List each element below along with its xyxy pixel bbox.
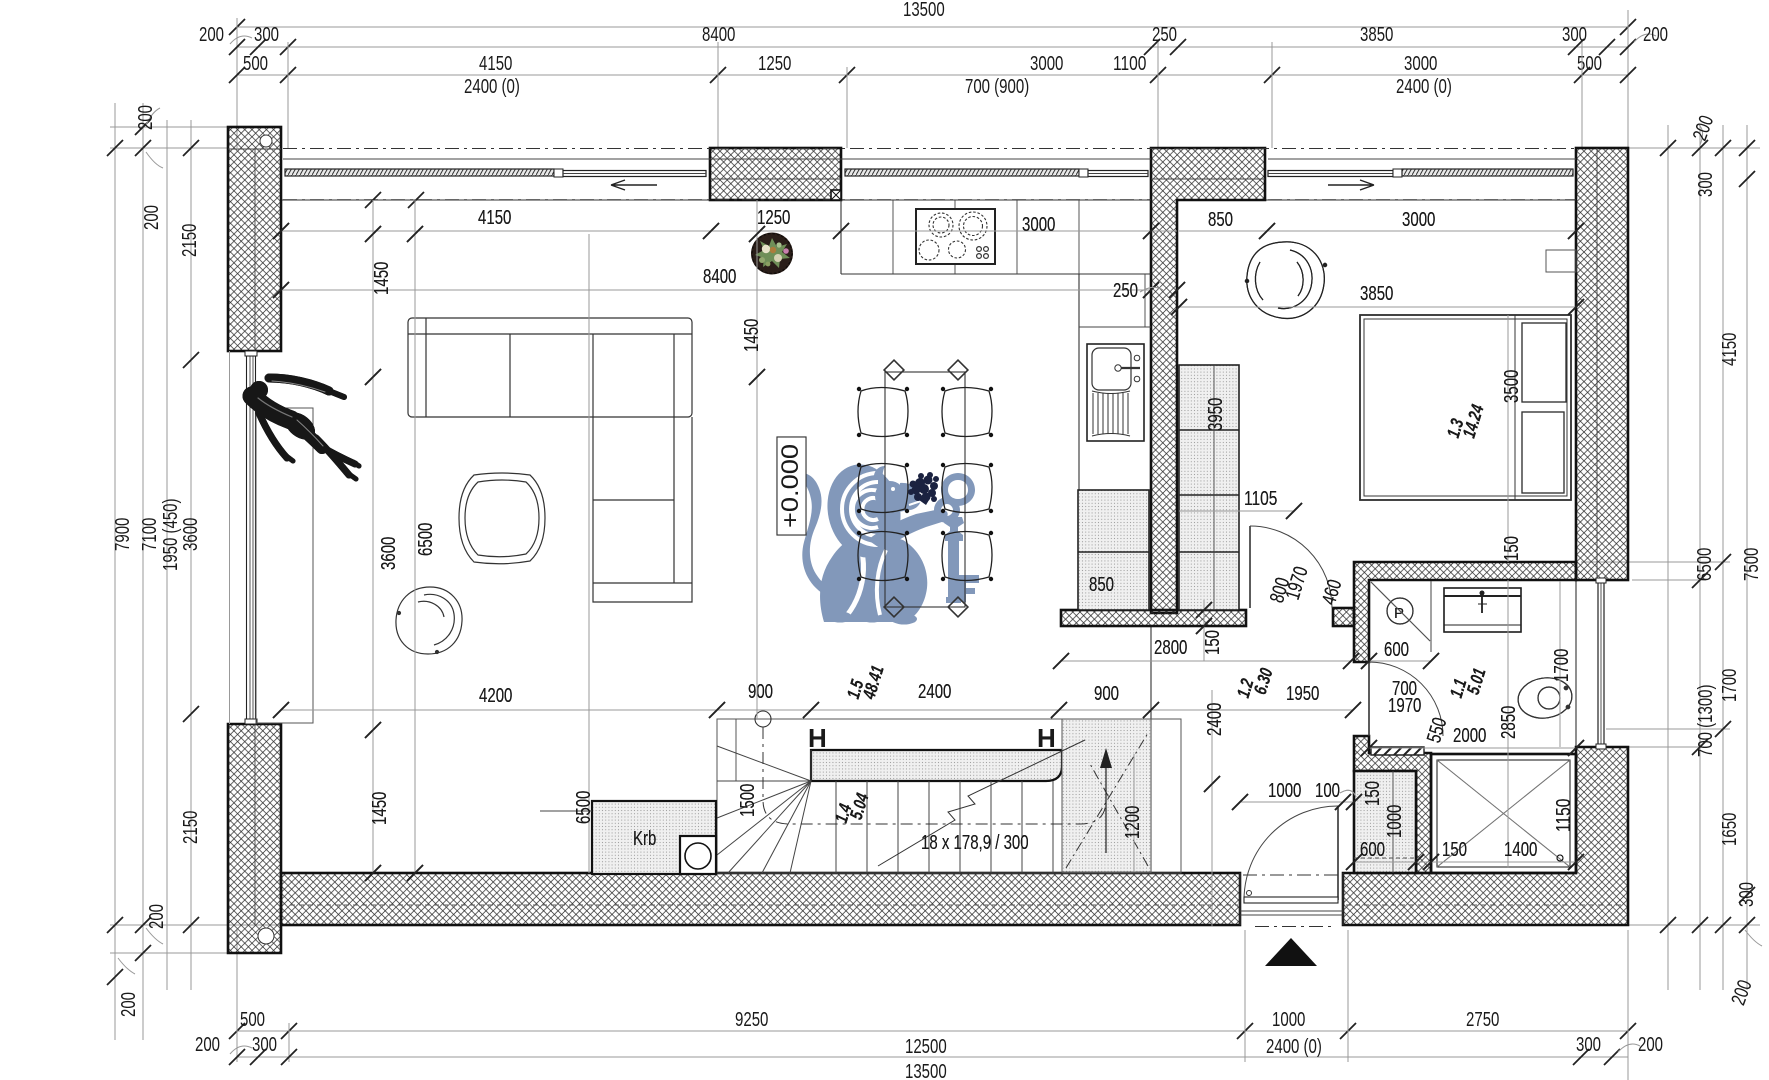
svg-text:1700: 1700 xyxy=(1551,649,1573,682)
svg-text:1000: 1000 xyxy=(1272,1009,1305,1031)
svg-text:1100: 1100 xyxy=(1113,53,1146,75)
svg-text:3850: 3850 xyxy=(1360,283,1393,305)
svg-text:H: H xyxy=(808,723,827,753)
svg-text:1250: 1250 xyxy=(757,207,790,229)
svg-text:200: 200 xyxy=(141,205,163,230)
svg-text:200: 200 xyxy=(135,105,157,130)
svg-text:4150: 4150 xyxy=(479,53,512,75)
svg-text:6500: 6500 xyxy=(573,791,595,824)
svg-text:300: 300 xyxy=(252,1034,277,1056)
svg-text:2000: 2000 xyxy=(1453,725,1486,747)
svg-text:250: 250 xyxy=(1152,24,1177,46)
svg-text:8400: 8400 xyxy=(702,24,735,46)
svg-text:300: 300 xyxy=(254,24,279,46)
svg-text:8400: 8400 xyxy=(703,266,736,288)
svg-text:7500: 7500 xyxy=(1741,548,1763,581)
svg-text:900: 900 xyxy=(1094,683,1119,705)
svg-text:500: 500 xyxy=(243,53,268,75)
svg-text:13500: 13500 xyxy=(905,1061,947,1080)
svg-text:200: 200 xyxy=(118,992,140,1017)
svg-text:1450: 1450 xyxy=(741,319,763,352)
svg-text:7900: 7900 xyxy=(112,518,134,551)
svg-text:1950 (450): 1950 (450) xyxy=(160,499,182,572)
svg-text:2400 (0): 2400 (0) xyxy=(464,76,520,98)
svg-text:600: 600 xyxy=(1360,839,1385,861)
svg-text:3600: 3600 xyxy=(378,537,400,570)
svg-text:850: 850 xyxy=(1208,209,1233,231)
svg-text:1000: 1000 xyxy=(1268,780,1301,802)
svg-text:300: 300 xyxy=(1562,24,1587,46)
svg-text:3000: 3000 xyxy=(1030,53,1063,75)
svg-text:300: 300 xyxy=(1736,882,1758,907)
svg-text:4200: 4200 xyxy=(479,685,512,707)
svg-text:2400 (0): 2400 (0) xyxy=(1396,76,1452,98)
svg-text:4150: 4150 xyxy=(478,207,511,229)
svg-text:1450: 1450 xyxy=(371,262,393,295)
svg-text:250: 250 xyxy=(1113,280,1138,302)
svg-text:200: 200 xyxy=(195,1034,220,1056)
svg-text:2850: 2850 xyxy=(1498,706,1520,739)
svg-text:1150: 1150 xyxy=(1553,799,1575,832)
svg-text:300: 300 xyxy=(1576,1034,1601,1056)
svg-text:2400: 2400 xyxy=(918,681,951,703)
svg-text:6500: 6500 xyxy=(415,523,437,556)
svg-text:200: 200 xyxy=(1643,24,1668,46)
svg-text:100: 100 xyxy=(1315,780,1340,802)
svg-text:200: 200 xyxy=(146,904,168,929)
svg-text:3950: 3950 xyxy=(1205,398,1227,431)
svg-text:700 (1300): 700 (1300) xyxy=(1695,685,1717,758)
svg-text:150: 150 xyxy=(1202,630,1224,655)
svg-text:7100: 7100 xyxy=(139,518,161,551)
svg-text:+0.000: +0.000 xyxy=(777,444,804,528)
svg-text:2150: 2150 xyxy=(179,224,201,257)
svg-text:2150: 2150 xyxy=(180,811,202,844)
svg-text:1200: 1200 xyxy=(1122,806,1144,839)
svg-text:12500: 12500 xyxy=(905,1036,947,1058)
svg-text:9250: 9250 xyxy=(735,1009,768,1031)
svg-text:1500: 1500 xyxy=(737,784,759,817)
svg-text:1250: 1250 xyxy=(758,53,791,75)
svg-text:18 x 178,9 / 300: 18 x 178,9 / 300 xyxy=(921,832,1029,854)
svg-text:700 (900): 700 (900) xyxy=(965,76,1029,98)
svg-text:150: 150 xyxy=(1501,536,1523,561)
svg-text:2800: 2800 xyxy=(1154,637,1187,659)
svg-text:1450: 1450 xyxy=(369,792,391,825)
svg-text:6500: 6500 xyxy=(1694,548,1716,581)
svg-text:500: 500 xyxy=(1577,53,1602,75)
svg-text:150: 150 xyxy=(1362,781,1384,806)
svg-text:200: 200 xyxy=(199,24,224,46)
svg-text:2400 (0): 2400 (0) xyxy=(1266,1036,1322,1058)
svg-text:2750: 2750 xyxy=(1466,1009,1499,1031)
svg-text:1700: 1700 xyxy=(1719,669,1741,702)
svg-text:1400: 1400 xyxy=(1504,839,1537,861)
svg-text:1970: 1970 xyxy=(1388,695,1421,717)
svg-text:2400: 2400 xyxy=(1204,703,1226,736)
svg-text:3000: 3000 xyxy=(1404,53,1437,75)
svg-text:13500: 13500 xyxy=(903,0,945,21)
svg-text:1950: 1950 xyxy=(1286,683,1319,705)
svg-text:1650: 1650 xyxy=(1719,813,1741,846)
svg-text:300: 300 xyxy=(1695,172,1717,197)
svg-text:1105: 1105 xyxy=(1244,488,1277,510)
svg-text:3600: 3600 xyxy=(180,518,202,551)
svg-text:3500: 3500 xyxy=(1501,370,1523,403)
svg-text:H: H xyxy=(1037,723,1056,753)
svg-text:600: 600 xyxy=(1384,639,1409,661)
svg-text:Krb: Krb xyxy=(633,828,656,850)
svg-text:4150: 4150 xyxy=(1719,333,1741,366)
svg-text:500: 500 xyxy=(240,1009,265,1031)
svg-text:3000: 3000 xyxy=(1022,214,1055,236)
svg-text:150: 150 xyxy=(1442,839,1467,861)
svg-text:900: 900 xyxy=(748,681,773,703)
svg-text:3000: 3000 xyxy=(1402,209,1435,231)
svg-text:200: 200 xyxy=(1638,1034,1663,1056)
svg-text:3850: 3850 xyxy=(1360,24,1393,46)
svg-text:1000: 1000 xyxy=(1384,805,1406,838)
svg-text:850: 850 xyxy=(1089,574,1114,596)
